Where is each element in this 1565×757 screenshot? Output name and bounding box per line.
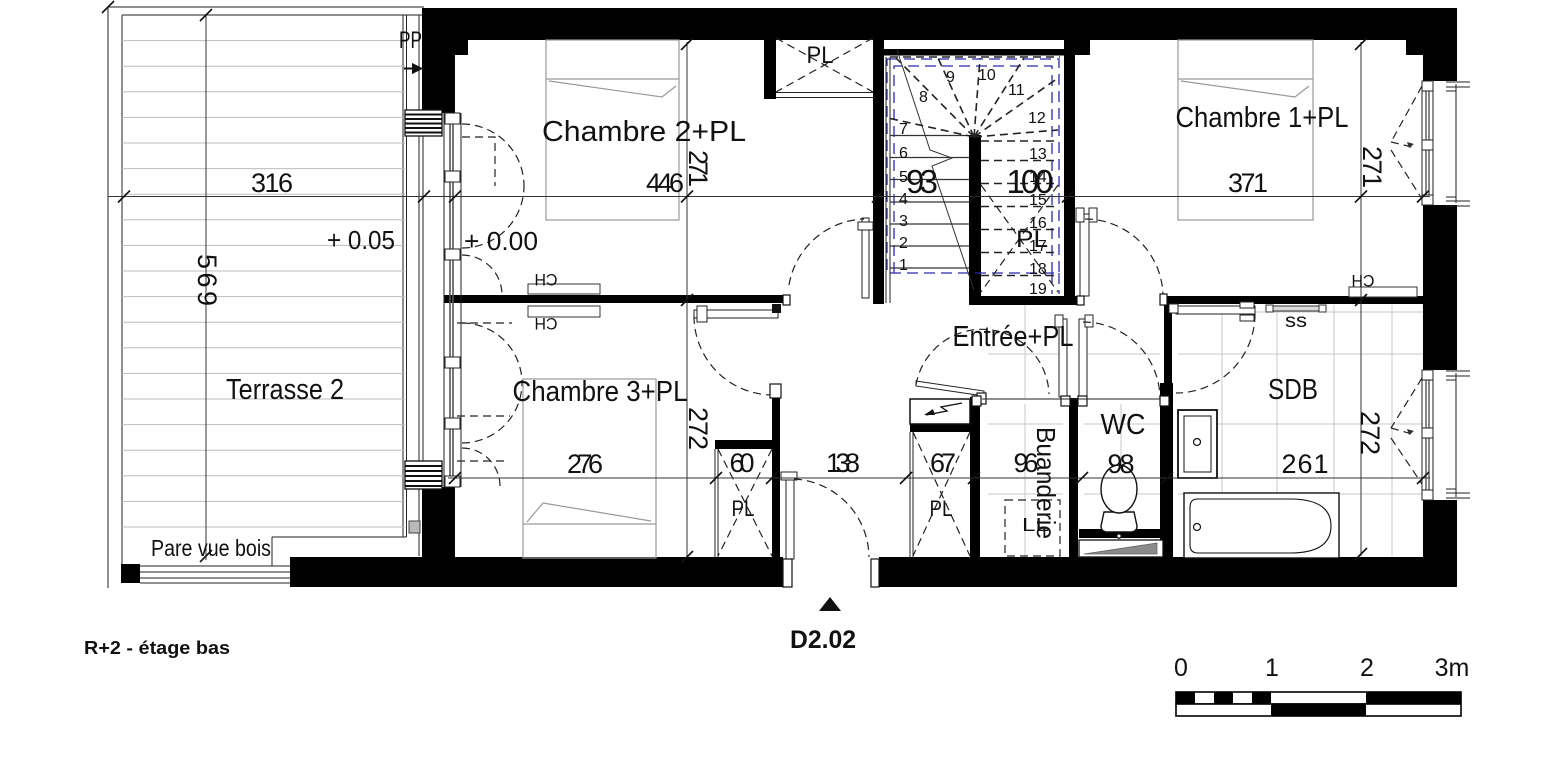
- svg-text:138: 138: [826, 448, 860, 478]
- svg-text:1: 1: [1265, 654, 1279, 682]
- svg-text:9: 9: [946, 69, 955, 86]
- svg-text:LL: LL: [1022, 515, 1049, 535]
- svg-text:Terrasse 2: Terrasse 2: [226, 374, 344, 406]
- svg-text:+ 0.00: + 0.00: [464, 226, 538, 256]
- svg-text:Pare vue bois: Pare vue bois: [151, 535, 271, 561]
- svg-text:PL: PL: [1016, 226, 1048, 253]
- svg-text:2: 2: [899, 235, 908, 252]
- svg-text:8: 8: [919, 89, 928, 106]
- svg-text:PL: PL: [807, 42, 834, 69]
- svg-text:CH: CH: [1352, 271, 1375, 290]
- svg-text:SDB: SDB: [1268, 374, 1318, 406]
- svg-text:18: 18: [1029, 261, 1047, 278]
- svg-text:67: 67: [930, 448, 956, 478]
- svg-text:60: 60: [730, 448, 755, 478]
- svg-text:100: 100: [1007, 163, 1054, 200]
- svg-text:13: 13: [1029, 146, 1047, 163]
- svg-text:11: 11: [1008, 82, 1025, 99]
- svg-text:12: 12: [1028, 110, 1046, 127]
- svg-text:+ 0.05: + 0.05: [327, 225, 395, 255]
- svg-text:7: 7: [899, 121, 908, 138]
- svg-text:Entrée+PL: Entrée+PL: [953, 321, 1074, 353]
- svg-text:93: 93: [906, 163, 938, 200]
- svg-text:3m: 3m: [1435, 654, 1470, 682]
- svg-text:271: 271: [1357, 146, 1387, 188]
- svg-text:98: 98: [1108, 449, 1135, 479]
- svg-text:D2.02: D2.02: [790, 626, 856, 654]
- svg-text:R+2 - étage bas: R+2 - étage bas: [84, 638, 230, 658]
- svg-text:PL: PL: [732, 496, 755, 521]
- svg-text:569: 569: [192, 254, 222, 306]
- svg-text:ss: ss: [1285, 311, 1307, 332]
- svg-text:2: 2: [1360, 654, 1374, 682]
- svg-text:Chambre 3+PL: Chambre 3+PL: [513, 376, 688, 408]
- svg-text:261: 261: [1282, 449, 1329, 479]
- svg-text:276: 276: [567, 449, 603, 479]
- svg-text:446: 446: [646, 168, 684, 198]
- svg-text:19: 19: [1029, 281, 1047, 298]
- svg-text:371: 371: [1228, 168, 1268, 198]
- svg-text:6: 6: [899, 145, 908, 162]
- svg-text:PP: PP: [399, 27, 422, 54]
- svg-text:272: 272: [1355, 411, 1385, 455]
- svg-text:1: 1: [899, 257, 908, 274]
- svg-text:Chambre 2+PL: Chambre 2+PL: [542, 116, 746, 148]
- svg-text:WC: WC: [1101, 409, 1146, 441]
- svg-text:271: 271: [683, 150, 713, 187]
- svg-text:CH: CH: [535, 270, 558, 289]
- svg-text:CH: CH: [535, 314, 558, 333]
- svg-text:3: 3: [899, 213, 908, 230]
- svg-text:0: 0: [1174, 654, 1188, 682]
- svg-text:PL: PL: [930, 496, 953, 521]
- svg-text:316: 316: [251, 168, 293, 198]
- svg-text:10: 10: [978, 67, 996, 84]
- svg-text:272: 272: [683, 407, 713, 450]
- svg-text:Chambre 1+PL: Chambre 1+PL: [1176, 102, 1349, 134]
